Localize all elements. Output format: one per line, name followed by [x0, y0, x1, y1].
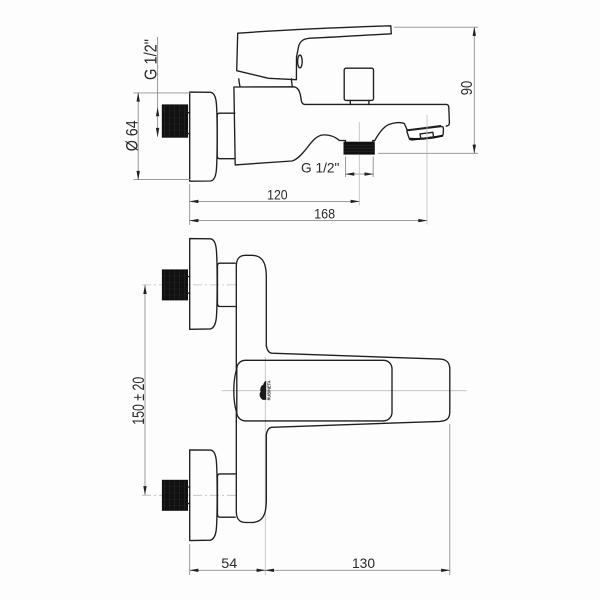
svg-text:168: 168: [314, 205, 335, 221]
svg-text:G 1/2": G 1/2": [301, 160, 340, 176]
svg-text:Ø 64: Ø 64: [123, 120, 141, 151]
svg-text:RUBINETA: RUBINETA: [267, 380, 273, 400]
svg-text:G 1/2": G 1/2": [141, 39, 161, 80]
svg-text:130: 130: [352, 555, 375, 571]
svg-text:120: 120: [267, 186, 288, 202]
svg-text:90: 90: [459, 80, 476, 95]
svg-text:150 ± 20: 150 ± 20: [129, 377, 148, 425]
svg-text:54: 54: [221, 555, 237, 571]
